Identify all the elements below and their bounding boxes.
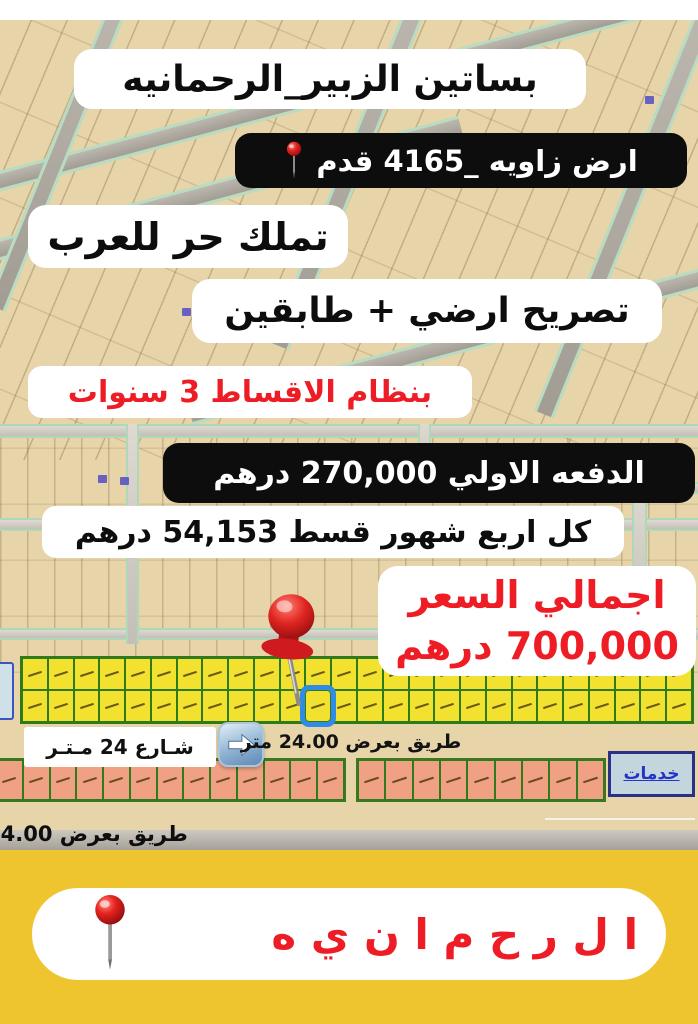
road-54-label: طريق بعرض 54.00	[0, 822, 188, 846]
title-text: بساتين الزبير_الرحمانيه	[122, 59, 538, 100]
parcel-cell	[467, 760, 494, 800]
installments-text: بنظام الاقساط 3 سنوات	[68, 375, 432, 410]
down-payment-text: الدفعه الاولي 270,000 درهم	[213, 456, 645, 491]
parcel-cell	[177, 658, 203, 690]
plot-info-box: ارض زاويه _4165 قدم	[235, 133, 687, 188]
parcel-cell	[666, 690, 692, 722]
parcel-cell	[640, 690, 666, 722]
quarterly-installment-box: كل اربع شهور قسط 54,153 درهم	[42, 506, 624, 558]
parcel-cell	[434, 690, 460, 722]
map-marker-icon	[120, 477, 129, 485]
title-box: بساتين الزبير_الرحمانيه	[74, 49, 586, 109]
parcel-cell	[99, 690, 125, 722]
red-pin-icon	[284, 141, 304, 181]
parcel-cell	[125, 658, 151, 690]
parcel-cell	[615, 690, 641, 722]
parcel-cell	[202, 690, 228, 722]
parcel-cell	[357, 690, 383, 722]
total-price-label: اجمالي السعر	[408, 570, 665, 621]
parcel-cell	[331, 658, 357, 690]
parcel-block-partial	[0, 662, 14, 720]
ownership-text: تملك حر للعرب	[47, 215, 328, 259]
road-24-label: طريق بعرض 24.00 متر	[240, 724, 462, 760]
parcel-cell	[495, 760, 522, 800]
parcel-cell	[0, 760, 23, 800]
total-price-box: اجمالي السعر 700,000 درهم	[378, 566, 696, 676]
parcel-cell	[264, 760, 291, 800]
map-marker-icon	[182, 308, 191, 316]
parcel-cell	[549, 760, 576, 800]
parcel-cell	[22, 658, 48, 690]
parcel-cell	[563, 690, 589, 722]
parcel-cell	[589, 690, 615, 722]
parcel-cell	[486, 690, 512, 722]
parcel-cell	[22, 690, 48, 722]
total-price-value: 700,000 درهم	[395, 621, 679, 672]
map-marker-icon	[645, 96, 654, 104]
parcel-cell	[383, 690, 409, 722]
real-estate-flyer: خدمات شـارع 24 مـتـر طريق بعرض 24.00 متر…	[0, 0, 698, 1024]
parcel-grid-salmon-right	[356, 758, 606, 802]
parcel-cell	[202, 658, 228, 690]
ownership-box: تملك حر للعرب	[28, 205, 348, 268]
map-marker-icon	[98, 475, 107, 483]
parcel-cell	[317, 760, 344, 800]
parcel-cell	[290, 760, 317, 800]
parcel-cell	[409, 690, 435, 722]
parcel-cell	[48, 690, 74, 722]
street-24-sign: شـارع 24 مـتـر	[24, 727, 216, 767]
top-white-strip	[0, 0, 698, 20]
permit-text: تصريح ارضي + طابقين	[224, 291, 629, 331]
parcel-cell	[512, 690, 538, 722]
area-name-text: ا ل ر ح م ا ن ي ه	[271, 910, 638, 959]
parcel-cell	[358, 760, 385, 800]
parcel-cell	[151, 658, 177, 690]
parcel-cell	[522, 760, 549, 800]
parcel-cell	[385, 760, 412, 800]
parcel-cell	[331, 690, 357, 722]
map-road	[0, 424, 698, 438]
installments-box: بنظام الاقساط 3 سنوات	[28, 366, 472, 418]
parcel-cell	[151, 690, 177, 722]
parcel-cell	[74, 658, 100, 690]
parcel-cell	[537, 690, 563, 722]
services-box: خدمات	[608, 751, 695, 797]
parcel-cell	[99, 658, 125, 690]
parcel-cell	[460, 690, 486, 722]
plot-info-text: ارض زاويه _4165 قدم	[316, 144, 637, 178]
permit-box: تصريح ارضي + طابقين	[192, 279, 662, 343]
bottom-banner: ا ل ر ح م ا ن ي ه	[0, 850, 698, 1024]
parcel-cell	[440, 760, 467, 800]
parcel-cell	[48, 658, 74, 690]
map-line	[545, 818, 695, 820]
red-pin-icon	[88, 894, 132, 974]
red-thumbtack-icon	[245, 588, 329, 715]
area-name-pill: ا ل ر ح م ا ن ي ه	[32, 888, 666, 980]
parcel-cell	[413, 760, 440, 800]
down-payment-box: الدفعه الاولي 270,000 درهم	[163, 443, 695, 503]
quarterly-installment-text: كل اربع شهور قسط 54,153 درهم	[75, 515, 591, 550]
parcel-cell	[125, 690, 151, 722]
parcel-cell	[177, 690, 203, 722]
parcel-cell	[74, 690, 100, 722]
parcel-cell	[577, 760, 604, 800]
